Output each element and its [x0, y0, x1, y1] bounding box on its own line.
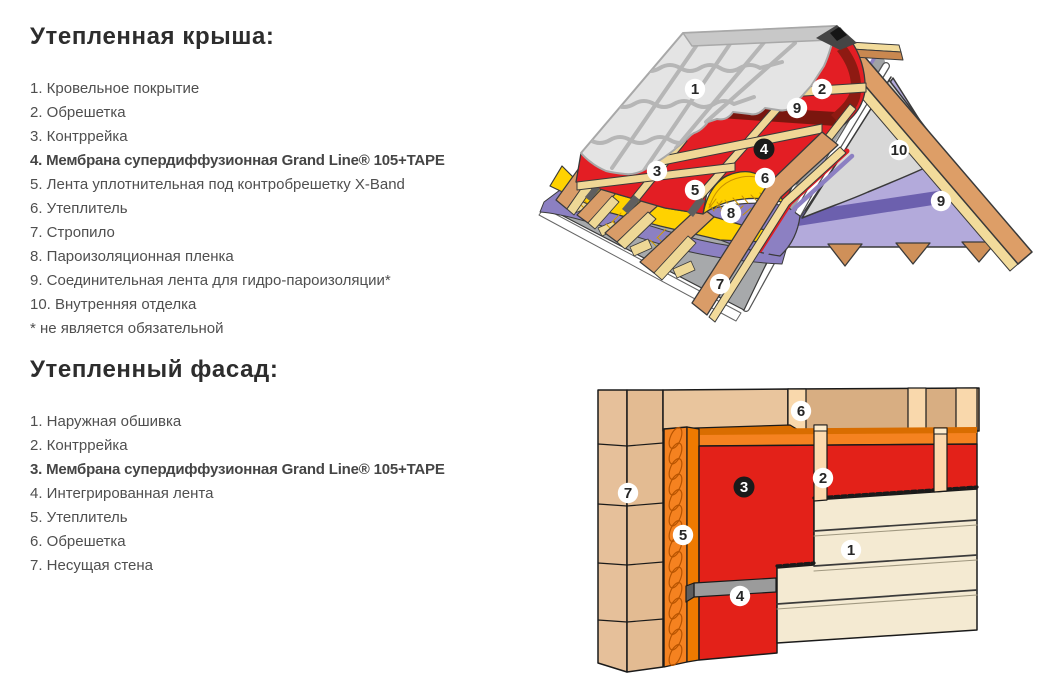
svg-text:4: 4 [736, 588, 745, 605]
svg-text:6: 6 [761, 170, 769, 187]
svg-text:2: 2 [819, 470, 827, 487]
svg-text:1: 1 [691, 81, 699, 98]
svg-text:9: 9 [793, 100, 801, 117]
svg-text:1: 1 [847, 542, 855, 559]
svg-text:5: 5 [691, 182, 699, 199]
svg-text:3: 3 [740, 479, 748, 496]
svg-text:10: 10 [891, 142, 908, 159]
svg-text:6: 6 [797, 403, 805, 420]
svg-text:2: 2 [818, 81, 826, 98]
svg-text:7: 7 [716, 276, 724, 293]
svg-text:5: 5 [679, 527, 687, 544]
svg-text:8: 8 [727, 205, 735, 222]
svg-text:7: 7 [624, 485, 632, 502]
svg-text:3: 3 [653, 163, 661, 180]
svg-text:9: 9 [937, 193, 945, 210]
svg-text:4: 4 [760, 141, 769, 158]
